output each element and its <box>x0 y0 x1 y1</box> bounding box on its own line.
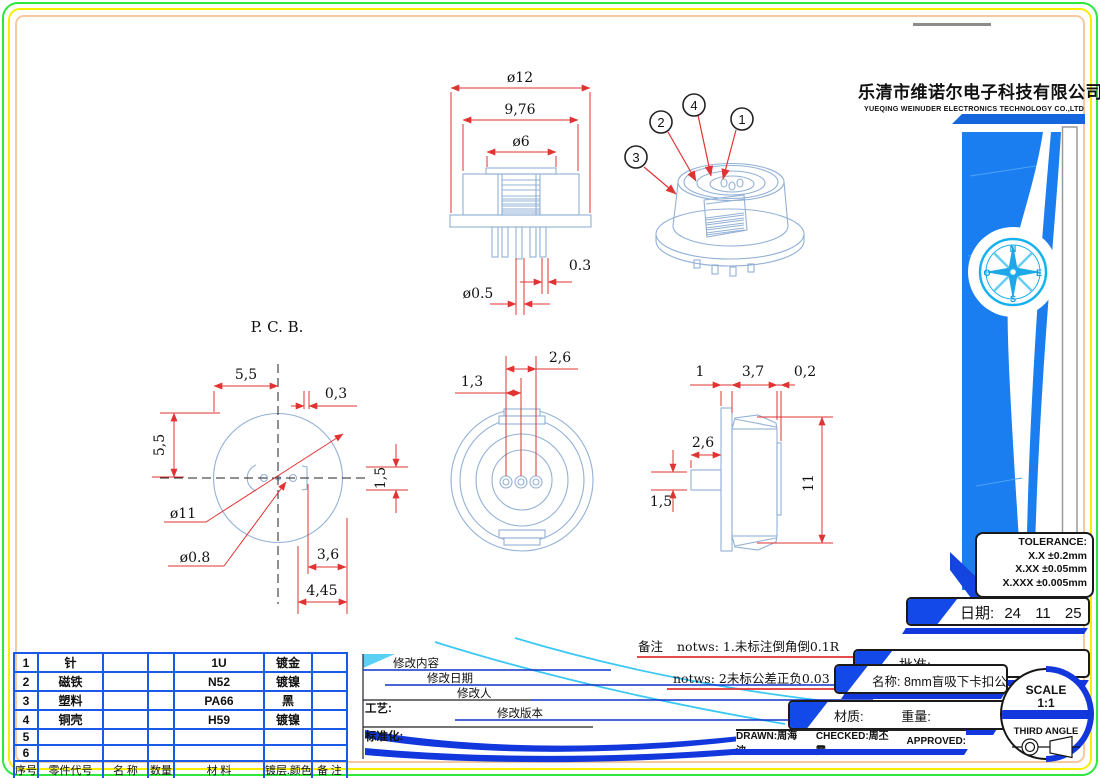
approved-label: APPROVED: <box>907 736 966 747</box>
balloon-3: 3 <box>632 150 639 165</box>
tolerance-title: TOLERANCE: <box>977 536 1087 550</box>
scale-value: 1:1 <box>1037 696 1055 710</box>
dim-pcb-slot-h: 1,5 <box>373 467 389 489</box>
dim-side-stem: 2,6 <box>692 435 714 451</box>
scale-label: SCALE <box>1026 683 1067 697</box>
note-1: notws: 1.未标注倒角倒0.1R <box>677 639 840 654</box>
dim-bottom-pitch-inner: 1,3 <box>461 374 483 390</box>
front-view: ø12 9,76 ø6 0.3 ø0.5 <box>430 58 630 320</box>
compass-rose: N E S O <box>968 227 1058 317</box>
scale-blue-band <box>1000 710 1092 719</box>
dim-side-body: 3,7 <box>742 364 764 380</box>
date-block: 日期: 24 11 25 <box>906 597 1090 626</box>
revision-person-label: 修改人 <box>457 686 492 700</box>
isometric-view: 3 2 4 1 <box>616 84 844 299</box>
side-view: 1 3,7 0,2 2,6 1,5 11 <box>645 336 875 588</box>
name-block: 名称: 8mm盲吸下卡扣公 <box>834 664 1008 694</box>
dim-pcb-pitch1: 3,6 <box>317 547 339 563</box>
dim-front-outer: ø12 <box>507 70 533 86</box>
side-outline <box>691 408 781 551</box>
cyan-wedge <box>363 654 395 668</box>
bom-row-6: 6 <box>14 745 347 761</box>
balloon-1: 1 <box>738 112 745 127</box>
date-label: 日期: <box>960 605 994 622</box>
dim-front-pin-dia: ø0.5 <box>463 286 494 302</box>
header-blue-bar <box>952 114 1085 124</box>
tolerance-line2: X.XX ±0.05mm <box>977 563 1087 577</box>
dim-pcb-offset-x: 5,5 <box>235 367 257 383</box>
process-label: 工艺: <box>365 701 392 715</box>
dim-side-step: 0,2 <box>794 364 816 380</box>
company-name-cn: 乐清市维诺尔电子科技有限公司 <box>858 78 1090 103</box>
bom-row-2: 2磁铁N52镀镍 <box>14 672 347 691</box>
pcb-view: P. C. B. <box>150 306 442 622</box>
projection-label: THIRD ANGLE <box>1014 726 1079 737</box>
pcb-title: P. C. B. <box>251 318 304 336</box>
signature-row: DRAWN:周海波 CHECKED:周丕霞 APPROVED: <box>736 729 966 751</box>
iso-part-outline <box>656 164 804 277</box>
material-accent <box>788 700 829 730</box>
pcb-dim-lines <box>152 386 408 614</box>
sidebar-decoration: N E S O <box>948 106 1090 602</box>
revision-date-label: 修改日期 <box>427 671 473 685</box>
date-value: 24 11 25 <box>1004 605 1081 622</box>
note-2: notws: 2未标公差正负0.03 <box>673 671 830 686</box>
compass-n: N <box>1010 244 1017 254</box>
top-gray-rule <box>913 23 991 26</box>
compass-w: O <box>983 268 990 278</box>
date-underbar <box>902 628 1088 634</box>
bottom-view: 2,6 1,3 <box>448 336 653 581</box>
dim-front-pin-gap: 0.3 <box>569 258 591 274</box>
bom-table: 1针1U镀金 2磁铁N52镀镍 3塑料PA66黑 4铜壳H59镀镍 5 6 序号… <box>13 652 348 778</box>
bottom-outline <box>451 409 593 551</box>
bom-header-row: 序号零件代号名 称数量材 料镀层.颜色备 注 <box>14 761 347 778</box>
tolerance-line1: X.X ±0.2mm <box>977 550 1087 564</box>
front-part-outline <box>450 168 591 259</box>
dim-side-flange: 1 <box>696 364 705 380</box>
dim-side-height: 11 <box>801 474 817 492</box>
balloon-2: 2 <box>657 115 664 130</box>
process-rules <box>363 700 593 727</box>
dim-pcb-pitch2: 4,45 <box>306 583 337 599</box>
dim-pcb-board-dia: ø11 <box>170 506 196 522</box>
side-dim-lines <box>651 385 833 543</box>
balloon-4: 4 <box>690 98 697 113</box>
part-name-value: 8mm盲吸下卡扣公 <box>904 675 1007 689</box>
balloon-callouts: 3 2 4 1 <box>625 94 753 168</box>
signature-underbar <box>732 749 968 755</box>
dim-pcb-offset-y: 5,5 <box>152 434 168 456</box>
bom-row-1: 1针1U镀金 <box>14 653 347 672</box>
bom-row-5: 5 <box>14 729 347 745</box>
notes-label: 备注 <box>638 639 664 654</box>
standard-label: 标准化: <box>364 729 403 743</box>
compass-e: E <box>1036 268 1042 278</box>
bom-row-3: 3塑料PA66黑 <box>14 691 347 710</box>
white-strip <box>1063 127 1078 597</box>
material-block: 材质: 重量: <box>788 700 1012 730</box>
scale-stamp: SCALE 1:1 THIRD ANGLE <box>996 664 1096 764</box>
dim-pcb-slot-w: 0,3 <box>325 386 347 402</box>
dim-pcb-hole-dia: ø0.8 <box>180 550 211 566</box>
dim-side-stem-h: 1,5 <box>650 494 672 510</box>
dim-bottom-pitch-outer: 2,6 <box>549 350 571 366</box>
bom-row-4: 4铜壳H59镀镍 <box>14 710 347 729</box>
swoosh-sliver <box>1026 132 1061 590</box>
material-label: 材质: <box>834 709 864 724</box>
drawing-sheet: 乐清市维诺尔电子科技有限公司 YUEQING WEINUDER ELECTRON… <box>0 0 1100 778</box>
part-name-label: 名称: <box>872 675 900 689</box>
dim-front-cap: ø6 <box>512 134 529 150</box>
tolerance-box: TOLERANCE: X.X ±0.2mm X.XX ±0.05mm X.XXX… <box>975 532 1094 598</box>
name-accent <box>834 664 869 694</box>
tolerance-line3: X.XXX ±0.005mm <box>977 577 1087 591</box>
date-accent <box>906 597 959 626</box>
dim-front-body: 9,76 <box>504 102 535 118</box>
compass-s: S <box>1010 294 1016 304</box>
revision-version-label: 修改版本 <box>497 706 543 720</box>
weight-label: 重量: <box>901 709 931 724</box>
revision-content-label: 修改内容 <box>393 656 439 670</box>
